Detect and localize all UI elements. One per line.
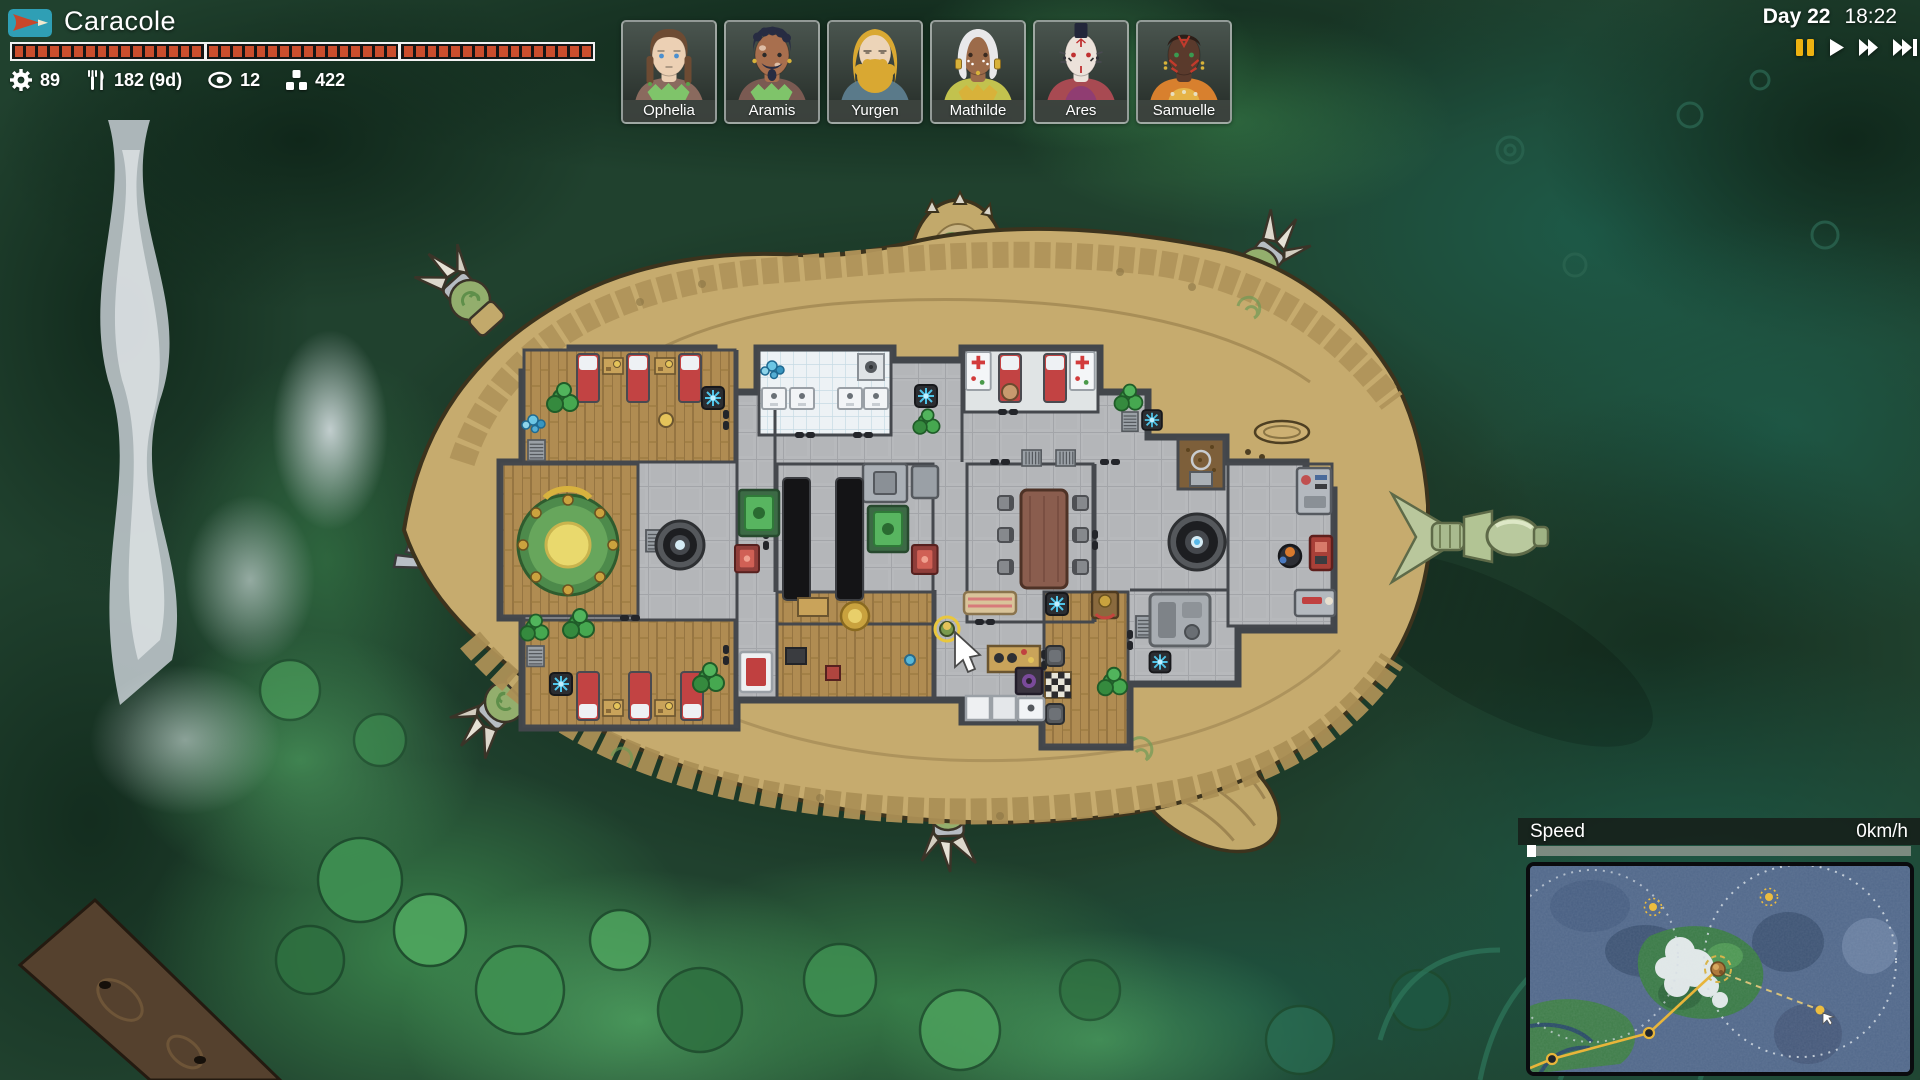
crew-name: Samuelle — [1138, 100, 1230, 122]
crew-name: Aramis — [726, 100, 818, 122]
speed-panel: Speed 0km/h — [1518, 818, 1920, 856]
speed-value: 0km/h — [1856, 821, 1908, 843]
integrity-bar-section — [207, 44, 399, 59]
app-logo — [8, 9, 52, 37]
stat-population-value: 422 — [315, 70, 345, 91]
engine — [1169, 514, 1225, 570]
integrity-bar-section — [401, 44, 593, 59]
stat-food-value: 182 (9d) — [114, 70, 182, 91]
speed-gauge-knob — [1527, 845, 1536, 857]
crew-name: Mathilde — [932, 100, 1024, 122]
play-button[interactable] — [1829, 38, 1845, 57]
pause-button[interactable] — [1795, 38, 1816, 57]
crew-name: Yurgen — [829, 100, 921, 122]
time-label: 18:22 — [1844, 5, 1897, 28]
solar-panel — [783, 478, 810, 600]
integrity-bar — [10, 42, 595, 61]
time-controls — [1795, 36, 1918, 58]
crew-name: Ophelia — [623, 100, 715, 122]
crew-portrait-samuelle[interactable]: Samuelle — [1136, 20, 1232, 124]
crew-portrait-mathilde[interactable]: Mathilde — [930, 20, 1026, 124]
stat-power: 89 — [10, 69, 60, 91]
food-icon — [86, 69, 106, 91]
integrity-bar-section — [12, 44, 204, 59]
crew-strip: Ophelia Aramis — [621, 20, 1232, 124]
fast-forward-button[interactable] — [1858, 38, 1879, 57]
crew-portrait-ophelia[interactable]: Ophelia — [621, 20, 717, 124]
colony-title: Caracole — [64, 6, 176, 37]
crew-name: Ares — [1035, 100, 1127, 122]
stat-power-value: 89 — [40, 70, 60, 91]
fastest-button[interactable] — [1892, 38, 1918, 57]
crew-portrait-yurgen[interactable]: Yurgen — [827, 20, 923, 124]
population-icon — [286, 70, 307, 91]
pilot-seat — [1279, 545, 1301, 567]
crew-portrait-aramis[interactable]: Aramis — [724, 20, 820, 124]
chess-table — [1045, 672, 1071, 698]
stat-visibility-value: 12 — [240, 70, 260, 91]
stat-visibility: 12 — [208, 70, 260, 91]
stat-food: 182 (9d) — [86, 69, 182, 91]
crew-portrait-ares[interactable]: Ares — [1033, 20, 1129, 124]
resource-stats: 89 182 (9d) 12 422 — [10, 69, 345, 91]
minimap[interactable] — [1526, 862, 1914, 1076]
speed-label: Speed — [1530, 821, 1585, 843]
eye-icon — [208, 71, 232, 89]
stat-population: 422 — [286, 70, 345, 91]
day-label: Day 22 — [1763, 5, 1831, 28]
clock: Day 2218:22 — [1763, 5, 1897, 29]
speed-gauge — [1527, 846, 1911, 856]
solar-panel — [836, 478, 863, 600]
gear-icon — [10, 69, 32, 91]
